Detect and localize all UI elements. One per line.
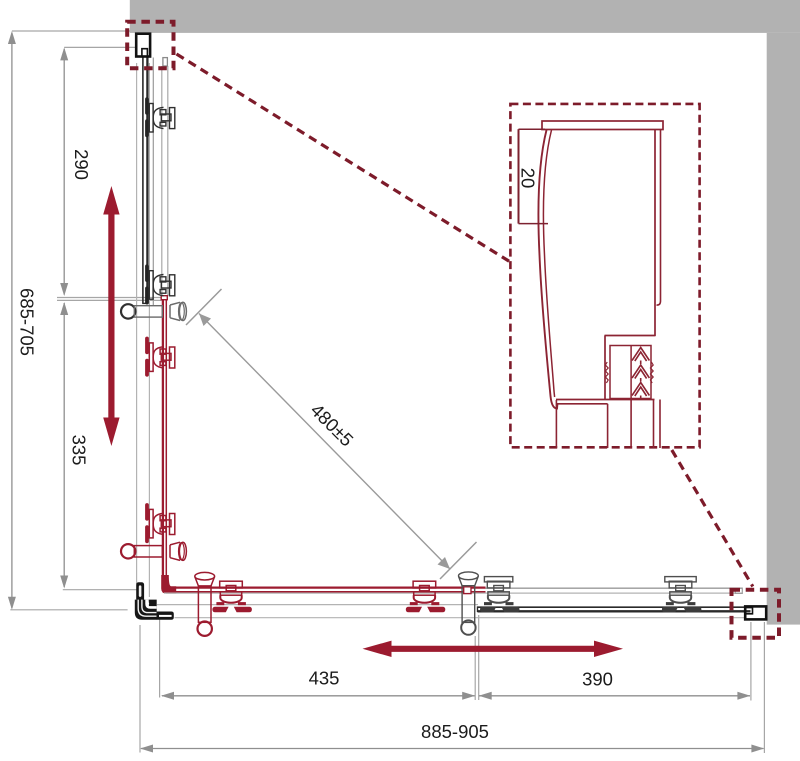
- svg-text:390: 390: [582, 669, 613, 690]
- svg-text:435: 435: [309, 668, 340, 689]
- svg-text:20: 20: [518, 168, 539, 189]
- svg-text:335: 335: [69, 435, 90, 466]
- svg-text:685-705: 685-705: [17, 288, 38, 356]
- svg-text:480±5: 480±5: [307, 399, 358, 450]
- svg-text:885-905: 885-905: [421, 721, 489, 742]
- svg-text:290: 290: [71, 149, 92, 180]
